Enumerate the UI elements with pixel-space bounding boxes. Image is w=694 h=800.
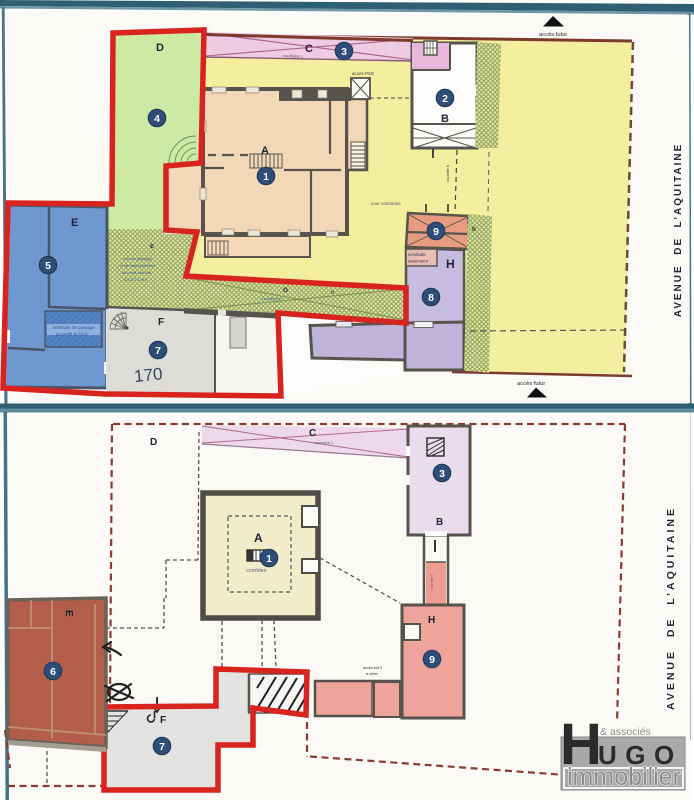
svg-text:& associés: & associés [600, 726, 651, 738]
svg-text:immobilier: immobilier [567, 763, 681, 791]
svg-text:7: 7 [155, 345, 161, 357]
svg-text:2: 2 [442, 93, 448, 105]
svg-text:D: D [150, 437, 157, 448]
svg-text:combles: combles [246, 568, 267, 574]
svg-text:C: C [309, 428, 316, 439]
svg-text:4 5 6 7 8 et 9: 4 5 6 7 8 et 9 [124, 277, 148, 282]
svg-text:à créer: à créer [366, 672, 379, 676]
svg-text:au profit des lots: au profit des lots [122, 270, 151, 275]
svg-text:8: 8 [428, 292, 434, 304]
svg-text:H: H [428, 615, 435, 626]
svg-text:cour commune: cour commune [371, 201, 401, 206]
svg-text:170: 170 [133, 364, 163, 386]
svg-text:A: A [261, 145, 269, 157]
svg-text:servitude de passage: servitude de passage [53, 325, 95, 330]
svg-text:E: E [71, 217, 78, 229]
svg-text:D: D [156, 42, 164, 54]
svg-text:3: 3 [439, 468, 445, 480]
svg-text:courbière 1: courbière 1 [314, 441, 333, 445]
svg-text:F: F [158, 317, 164, 328]
svg-text:G: G [283, 287, 288, 294]
svg-text:1: 1 [266, 553, 272, 565]
svg-text:AVENUE DE L’AQUITAINE: AVENUE DE L’AQUITAINE [665, 506, 677, 710]
svg-text:B: B [441, 113, 449, 125]
svg-text:9: 9 [429, 654, 435, 666]
svg-text:9: 9 [433, 226, 439, 238]
svg-text:H: H [446, 257, 455, 271]
svg-text:4: 4 [154, 113, 160, 125]
svg-text:7: 7 [159, 741, 165, 753]
svg-text:6: 6 [50, 666, 56, 678]
svg-text:c: c [150, 243, 154, 250]
svg-text:accès toit 9: accès toit 9 [363, 666, 382, 670]
svg-text:1: 1 [263, 171, 269, 183]
svg-text:3: 3 [341, 46, 347, 58]
svg-text:F: F [160, 715, 166, 726]
svg-text:5: 5 [45, 260, 51, 272]
svg-text:courette 9: courette 9 [430, 574, 434, 590]
svg-text:E: E [63, 610, 74, 617]
svg-text:accès futur: accès futur [539, 32, 567, 38]
svg-text:accès PSS: accès PSS [352, 71, 374, 76]
svg-text:courbière G: courbière G [262, 297, 282, 301]
svg-text:au profit du lot 9: au profit du lot 9 [56, 332, 88, 337]
svg-text:A: A [254, 531, 263, 545]
svg-text:et de stationnement: et de stationnement [120, 263, 156, 268]
svg-text:clos de passage: clos de passage [123, 256, 153, 261]
svg-text:h: h [472, 227, 476, 233]
svg-text:servitude: servitude [408, 252, 426, 257]
svg-text:C: C [305, 43, 313, 55]
svg-text:B: B [436, 517, 443, 528]
svg-text:ascenseur: ascenseur [408, 259, 429, 264]
svg-text:accès futur: accès futur [517, 381, 545, 387]
svg-text:courtille b: courtille b [445, 164, 450, 182]
svg-text:b: b [331, 290, 334, 296]
svg-text:AVENUE DE L’AQUITAINE: AVENUE DE L’AQUITAINE [673, 143, 684, 318]
